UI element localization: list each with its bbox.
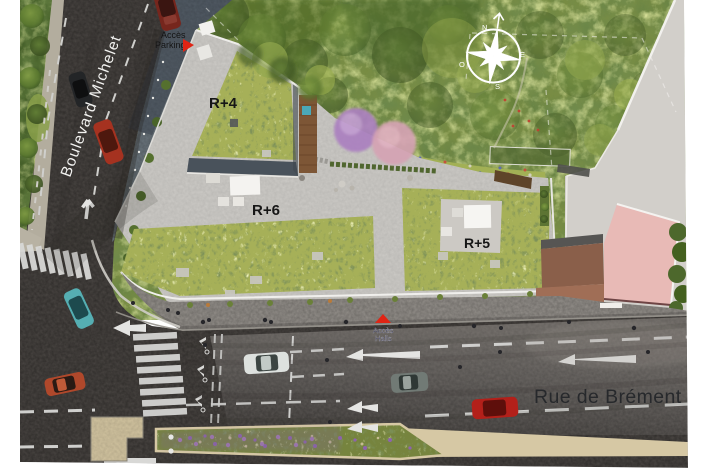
svg-text:R+4: R+4 bbox=[209, 95, 238, 112]
svg-text:O: O bbox=[459, 60, 465, 69]
svg-text:R+5: R+5 bbox=[464, 235, 490, 251]
svg-text:Parking: Parking bbox=[155, 40, 186, 50]
svg-text:E: E bbox=[520, 50, 525, 59]
svg-text:S: S bbox=[495, 82, 500, 91]
svg-text:R+6: R+6 bbox=[252, 202, 280, 219]
svg-text:Accès: Accès bbox=[161, 30, 186, 40]
svg-text:Rue de Brément: Rue de Brément bbox=[534, 386, 682, 408]
svg-text:N: N bbox=[482, 23, 487, 32]
svg-text:Halls: Halls bbox=[375, 334, 392, 343]
